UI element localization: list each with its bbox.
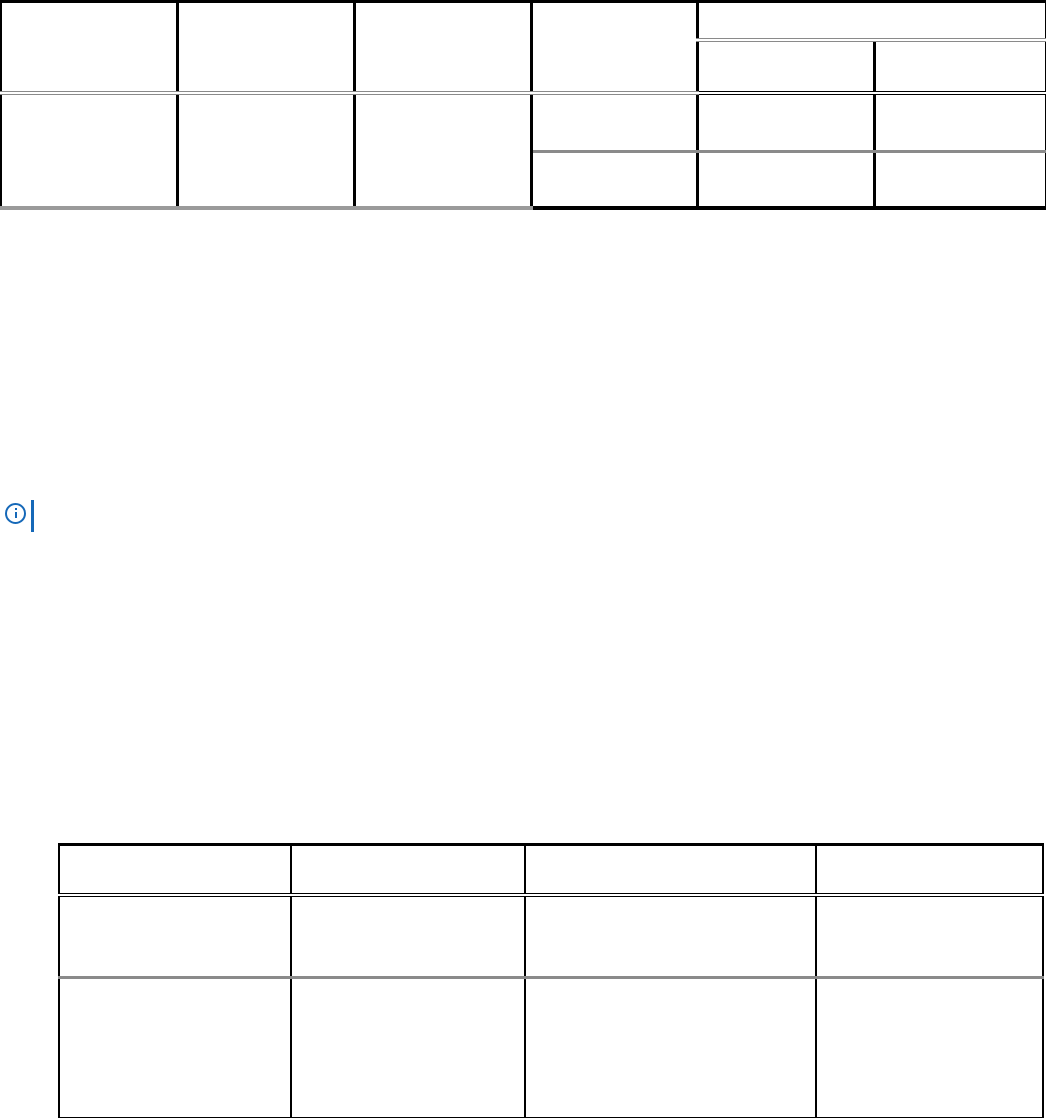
document-page	[0, 0, 1046, 1118]
table-cell	[875, 152, 1046, 209]
table-span-header-cell	[698, 2, 1046, 41]
table-header-cell	[291, 845, 525, 896]
bottom-table-header-row	[59, 845, 1043, 896]
top-table-header-row	[1, 2, 1046, 41]
bottom-table-body-row	[59, 978, 1043, 1118]
table-cell	[291, 895, 525, 978]
table-cell	[532, 93, 698, 152]
table-cell	[59, 978, 291, 1118]
info-icon	[5, 503, 26, 524]
table-cell	[816, 978, 1043, 1118]
table-cell	[525, 895, 816, 978]
bottom-table-body-row	[59, 895, 1043, 978]
bottom-table	[58, 843, 1044, 1118]
note-left-border	[31, 500, 34, 532]
table-header-cell	[816, 845, 1043, 896]
table-header-cell	[1, 2, 178, 94]
top-table-body-row	[1, 93, 1046, 152]
table-header-cell	[178, 2, 355, 94]
note-callout	[0, 498, 60, 538]
table-cell	[525, 978, 816, 1118]
table-header-cell	[525, 845, 816, 896]
table-header-cell	[355, 2, 532, 94]
table-subheader-cell	[698, 40, 875, 93]
table-cell	[532, 152, 698, 209]
table-subheader-cell	[875, 40, 1046, 93]
table-header-cell	[532, 2, 698, 94]
table-cell	[816, 895, 1043, 978]
table-cell	[355, 93, 532, 208]
table-cell	[875, 93, 1046, 152]
table-cell	[698, 152, 875, 209]
table-cell	[1, 93, 178, 208]
table-header-cell	[59, 845, 291, 896]
table-cell	[59, 895, 291, 978]
top-table	[0, 0, 1046, 210]
table-cell	[178, 93, 355, 208]
table-cell	[698, 93, 875, 152]
table-cell	[291, 978, 525, 1118]
